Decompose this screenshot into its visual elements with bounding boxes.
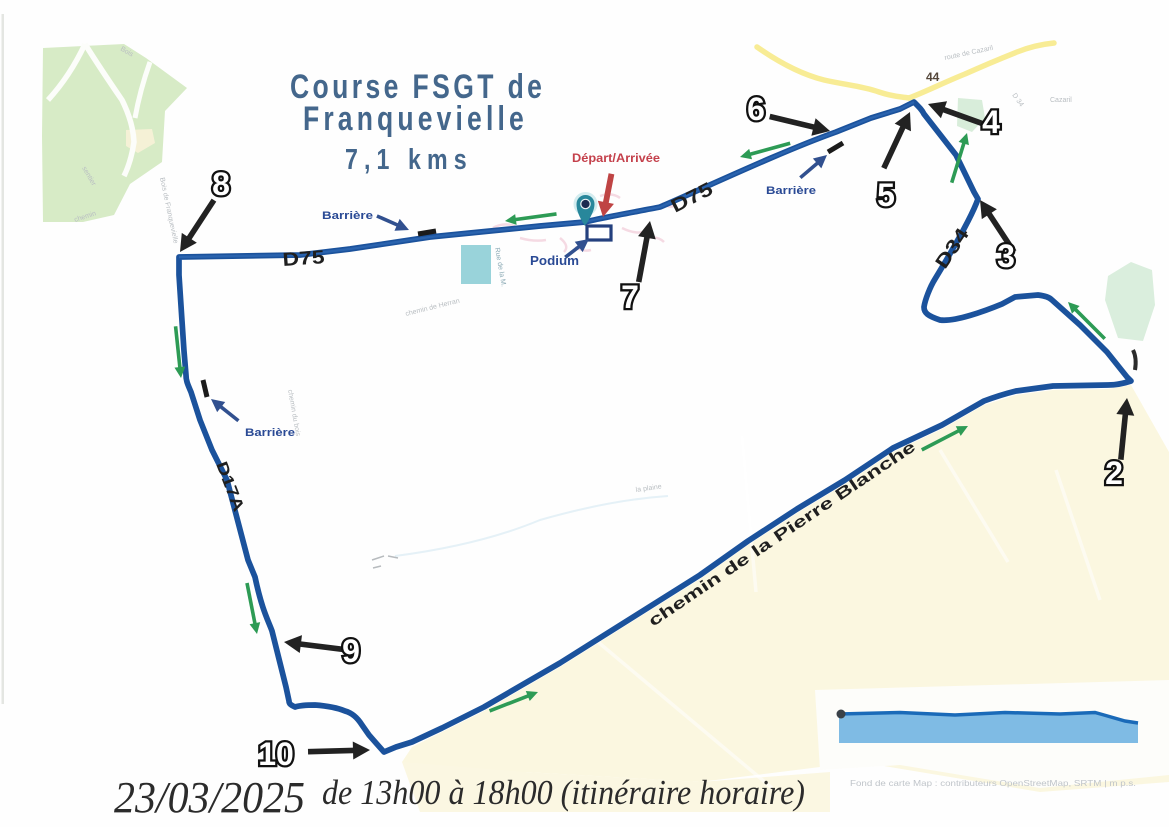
svg-text:10: 10: [258, 736, 294, 772]
svg-text:7: 7: [621, 279, 639, 315]
svg-text:23/03/2025: 23/03/2025: [114, 773, 305, 822]
svg-text:Barrière: Barrière: [245, 427, 295, 439]
svg-text:4: 4: [982, 104, 1000, 140]
svg-text:44: 44: [926, 70, 940, 84]
svg-text:6: 6: [747, 91, 765, 127]
svg-text:de 13h00 à 18h00 (itinéraire h: de 13h00 à 18h00 (itinéraire horaire): [322, 773, 805, 812]
svg-text:Cazaril: Cazaril: [1050, 97, 1072, 104]
svg-text:Barrière: Barrière: [766, 185, 816, 197]
svg-text:Fond de carte Map : contribute: Fond de carte Map : contributeurs OpenSt…: [850, 778, 1136, 788]
svg-text:D75: D75: [282, 247, 326, 271]
svg-text:Barrière: Barrière: [322, 210, 373, 222]
svg-text:9: 9: [342, 633, 360, 669]
svg-text:5: 5: [877, 177, 895, 213]
svg-text:3: 3: [997, 238, 1015, 274]
svg-text:8: 8: [212, 166, 230, 202]
svg-text:Podium: Podium: [530, 253, 579, 268]
svg-text:Départ/Arrivée: Départ/Arrivée: [572, 151, 660, 165]
svg-text:2: 2: [1105, 455, 1123, 491]
